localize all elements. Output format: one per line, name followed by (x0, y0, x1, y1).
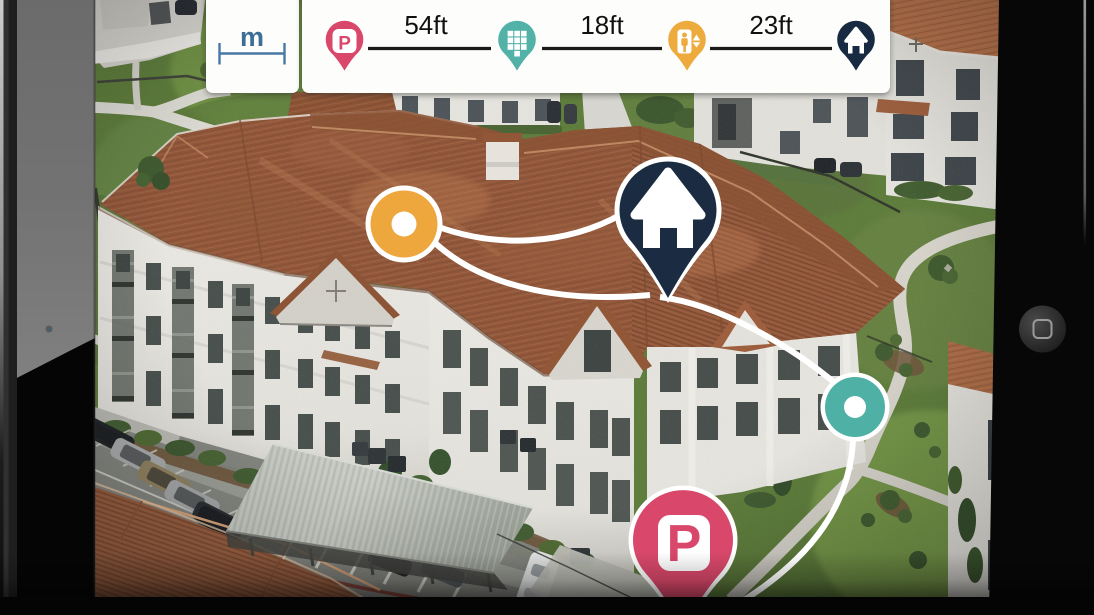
svg-text:23ft: 23ft (749, 10, 793, 40)
svg-text:54ft: 54ft (404, 10, 448, 40)
svg-text:18ft: 18ft (580, 10, 624, 40)
svg-text:P: P (338, 34, 351, 55)
svg-text:m: m (240, 22, 264, 52)
